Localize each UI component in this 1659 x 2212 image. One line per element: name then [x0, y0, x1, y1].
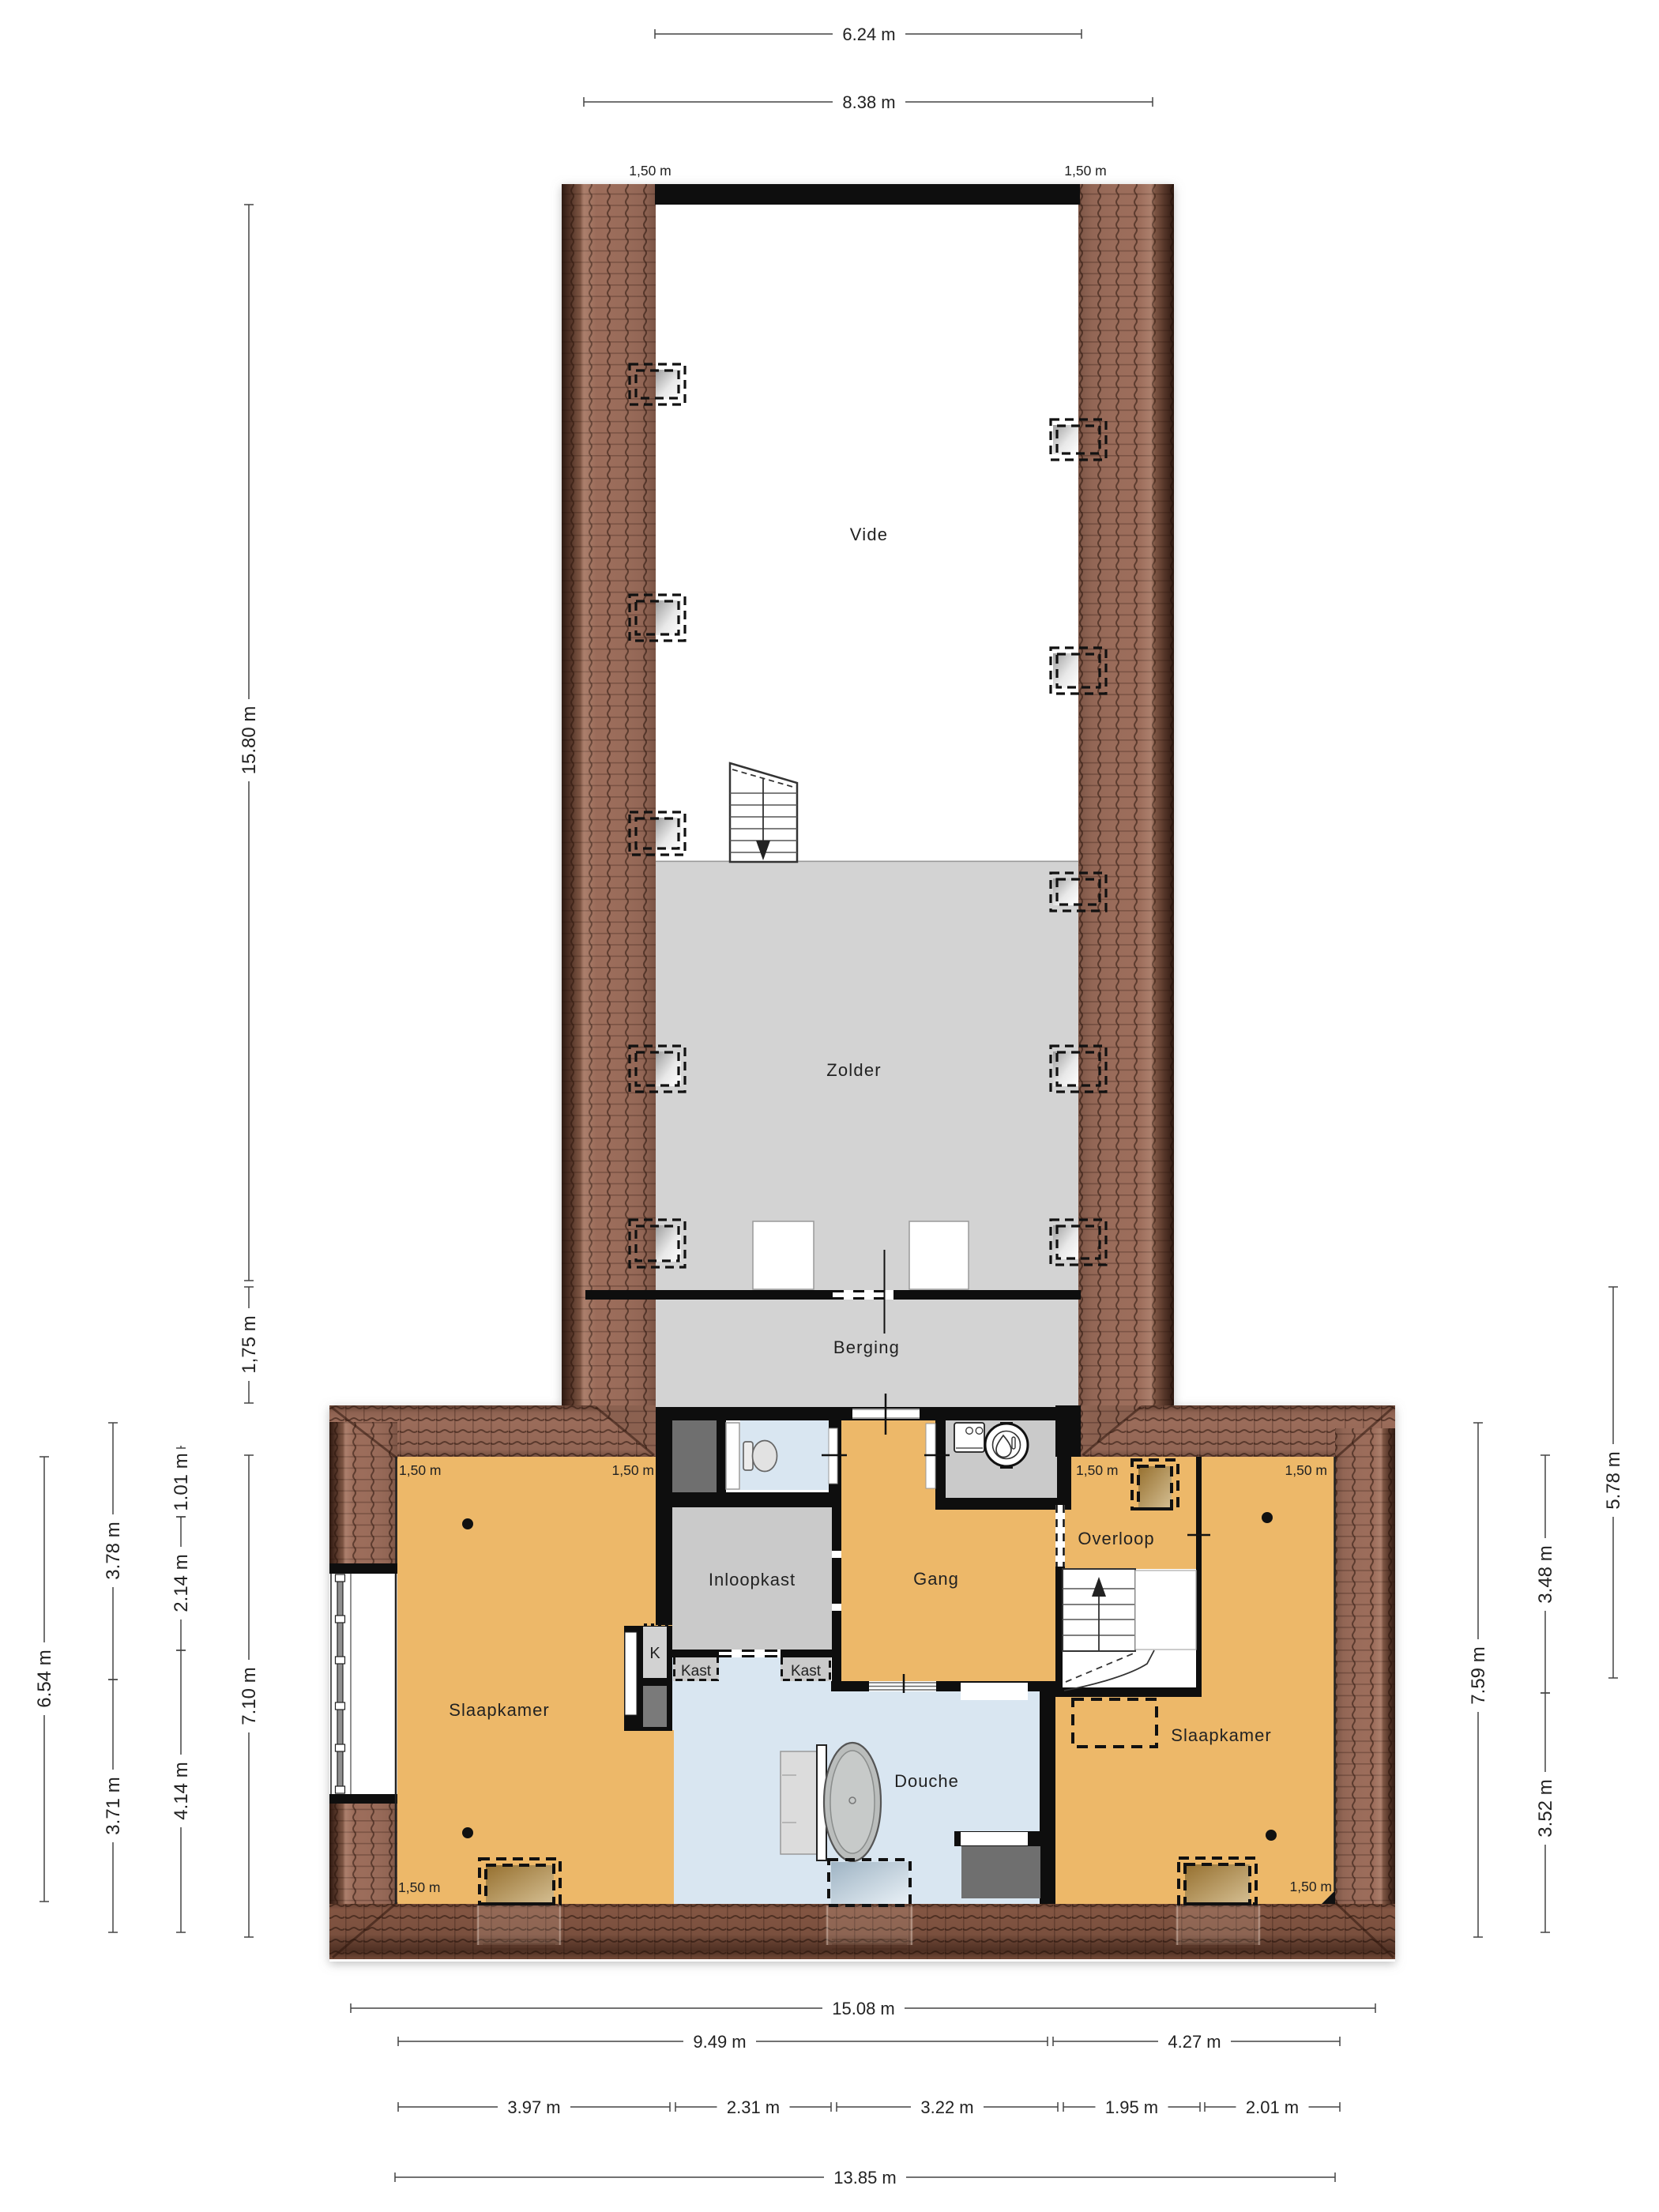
svg-text:3.78 m: 3.78 m	[103, 1522, 124, 1579]
svg-text:3.52 m: 3.52 m	[1535, 1779, 1556, 1837]
svg-text:3.22 m: 3.22 m	[920, 2097, 973, 2117]
svg-text:Douche: Douche	[894, 1771, 959, 1791]
svg-text:Kast: Kast	[791, 1663, 822, 1680]
svg-text:1,50 m: 1,50 m	[1285, 1462, 1328, 1478]
svg-text:1.01 m: 1.01 m	[171, 1453, 192, 1510]
svg-text:6.24 m: 6.24 m	[842, 24, 895, 44]
svg-text:7.59 m: 7.59 m	[1468, 1646, 1489, 1704]
svg-text:Berging: Berging	[833, 1337, 900, 1357]
svg-text:1,50 m: 1,50 m	[612, 1462, 655, 1478]
svg-text:Inloopkast: Inloopkast	[709, 1570, 796, 1589]
svg-text:2.14 m: 2.14 m	[171, 1554, 192, 1612]
svg-text:1,50 m: 1,50 m	[629, 163, 671, 179]
svg-text:2.31 m: 2.31 m	[727, 2097, 780, 2117]
svg-text:Slaapkamer: Slaapkamer	[1171, 1725, 1271, 1745]
svg-text:7.10 m: 7.10 m	[239, 1667, 260, 1725]
svg-text:3.71 m: 3.71 m	[103, 1777, 124, 1834]
svg-text:9.49 m: 9.49 m	[693, 2032, 746, 2052]
svg-text:1,50 m: 1,50 m	[1064, 163, 1107, 179]
svg-text:Gang: Gang	[913, 1569, 959, 1589]
svg-text:15.08 m: 15.08 m	[832, 1999, 895, 2018]
svg-text:5.78 m: 5.78 m	[1603, 1451, 1624, 1509]
svg-text:1.95 m: 1.95 m	[1105, 2097, 1158, 2117]
svg-text:K: K	[649, 1645, 660, 1662]
svg-text:13.85 m: 13.85 m	[833, 2168, 897, 2188]
svg-text:1,75 m: 1,75 m	[239, 1315, 260, 1373]
svg-text:1,50 m: 1,50 m	[399, 1462, 442, 1478]
svg-text:15.80 m: 15.80 m	[239, 706, 260, 775]
svg-text:4.27 m: 4.27 m	[1168, 2032, 1221, 2052]
svg-text:4.14 m: 4.14 m	[171, 1762, 192, 1819]
svg-text:1,50 m: 1,50 m	[1076, 1462, 1119, 1478]
svg-text:8.38 m: 8.38 m	[842, 92, 895, 112]
svg-text:Vide: Vide	[850, 525, 888, 544]
svg-text:Kast: Kast	[681, 1663, 712, 1680]
svg-text:3.48 m: 3.48 m	[1535, 1545, 1556, 1603]
svg-text:6.54 m: 6.54 m	[34, 1650, 55, 1707]
svg-text:Slaapkamer: Slaapkamer	[449, 1700, 549, 1720]
svg-text:Overloop: Overloop	[1078, 1529, 1154, 1548]
svg-text:Zolder: Zolder	[826, 1060, 882, 1080]
svg-text:2.01 m: 2.01 m	[1246, 2097, 1299, 2117]
svg-text:3.97 m: 3.97 m	[507, 2097, 560, 2117]
svg-text:1,50 m: 1,50 m	[1290, 1879, 1333, 1894]
svg-text:1,50 m: 1,50 m	[398, 1879, 441, 1895]
